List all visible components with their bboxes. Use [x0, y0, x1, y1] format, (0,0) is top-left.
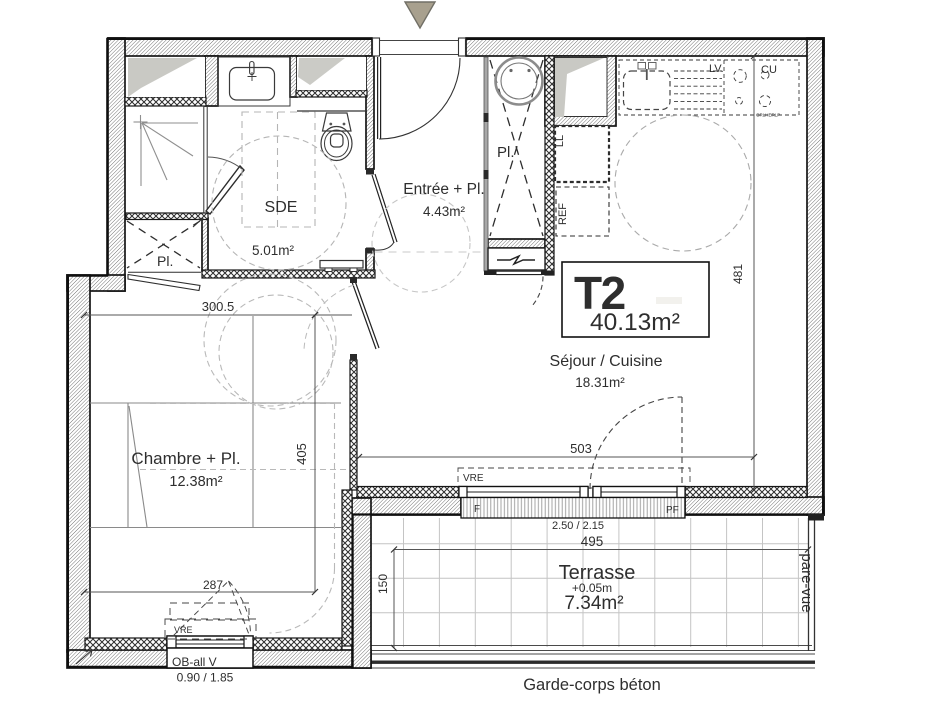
svg-text:VRE: VRE: [174, 625, 193, 635]
svg-text:SDE: SDE: [265, 199, 298, 216]
svg-text:495: 495: [581, 534, 604, 549]
svg-text:LL: LL: [554, 135, 566, 147]
svg-text:405: 405: [294, 443, 309, 465]
svg-text:Entrée + Pl.: Entrée + Pl.: [403, 181, 484, 198]
svg-text:GRLHERLP: GRLHERLP: [756, 113, 780, 118]
svg-text:LV.: LV.: [709, 63, 724, 75]
svg-text:18.31m²: 18.31m²: [575, 375, 625, 390]
svg-text:Chambre + Pl.: Chambre + Pl.: [131, 449, 240, 468]
svg-text:150: 150: [376, 574, 390, 594]
svg-text:300.5: 300.5: [202, 299, 235, 314]
svg-text:481: 481: [731, 264, 745, 284]
svg-text:5.01m²: 5.01m²: [252, 243, 295, 258]
svg-text:503: 503: [570, 441, 592, 456]
svg-text:287: 287: [203, 578, 223, 592]
svg-text:VRE: VRE: [463, 473, 484, 484]
svg-text:Séjour / Cuisine: Séjour / Cuisine: [550, 353, 663, 370]
svg-text:REF: REF: [557, 203, 569, 225]
svg-text:pare-vue: pare-vue: [798, 553, 815, 612]
svg-text:Pl.: Pl.: [157, 253, 173, 269]
svg-text:Pl.: Pl.: [497, 144, 515, 161]
svg-text:7.34m²: 7.34m²: [564, 593, 623, 614]
svg-text:2.50 / 2.15: 2.50 / 2.15: [552, 520, 604, 532]
svg-text:4.43m²: 4.43m²: [423, 204, 466, 219]
svg-text:Garde-corps béton: Garde-corps béton: [523, 676, 661, 694]
svg-text:PF: PF: [666, 505, 679, 516]
svg-text:40.13m²: 40.13m²: [590, 309, 680, 336]
svg-text:12.38m²: 12.38m²: [169, 474, 222, 490]
svg-text:0.90 / 1.85: 0.90 / 1.85: [177, 671, 234, 685]
svg-text:CU: CU: [761, 64, 777, 76]
svg-text:F: F: [474, 504, 480, 515]
svg-text:OB-all V: OB-all V: [172, 655, 217, 669]
